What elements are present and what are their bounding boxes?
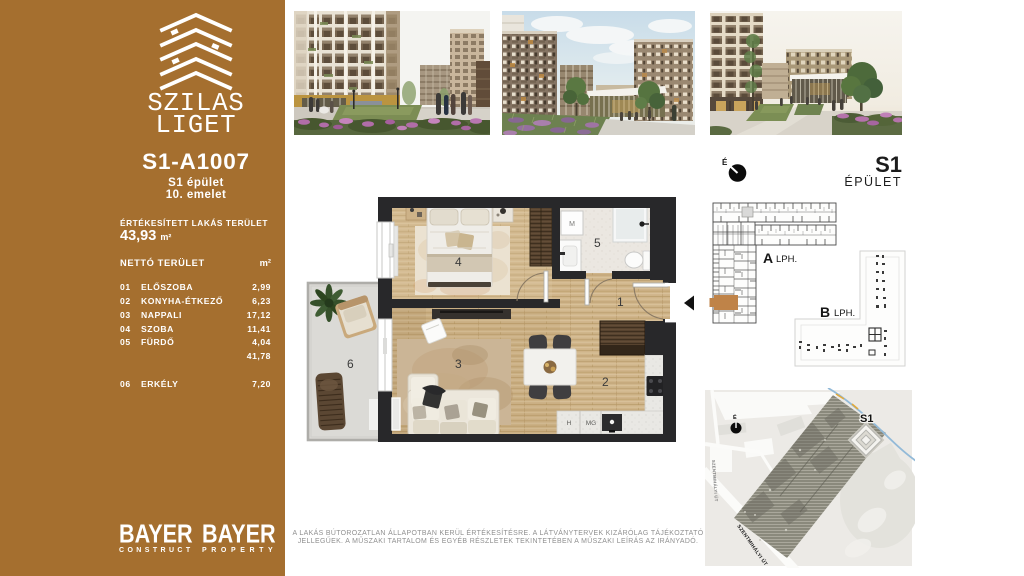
svg-text:S1: S1 — [860, 413, 873, 425]
svg-text:1: 1 — [617, 295, 624, 309]
svg-text:É: É — [733, 413, 737, 421]
svg-text:5: 5 — [594, 236, 601, 250]
svg-text:S1: S1 — [875, 152, 902, 177]
svg-text:6: 6 — [347, 357, 354, 371]
svg-text:LPH.: LPH. — [776, 254, 797, 265]
svg-text:3: 3 — [455, 357, 462, 371]
svg-text:LPH.: LPH. — [834, 308, 855, 319]
svg-text:B: B — [820, 304, 830, 320]
svg-text:A: A — [763, 250, 773, 266]
svg-text:H: H — [567, 420, 572, 427]
svg-text:É: É — [722, 158, 728, 167]
svg-text:MG: MG — [586, 420, 596, 427]
svg-text:2: 2 — [602, 375, 609, 389]
svg-text:4: 4 — [455, 255, 462, 269]
svg-text:ÉPÜLET: ÉPÜLET — [844, 174, 902, 189]
svg-text:M: M — [569, 221, 575, 228]
